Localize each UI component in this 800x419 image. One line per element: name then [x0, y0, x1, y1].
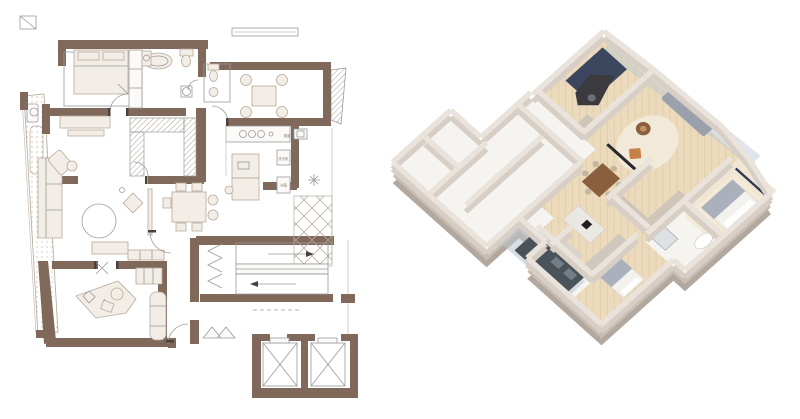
desk-chair-icon [111, 288, 123, 300]
floorplan-2d: 洗衣机 冰箱 烟道 [20, 16, 358, 398]
dining-table-icon [172, 192, 206, 222]
plant-icon [308, 174, 320, 186]
wardrobe-hatch [130, 118, 184, 132]
elevator-x-icon [311, 343, 345, 386]
ac-unit-top [20, 16, 36, 29]
wc-toilet-icon [210, 71, 218, 82]
fridge-label: 冰箱 [280, 183, 287, 188]
side-table-icon [67, 161, 77, 171]
floorplan-3d-isometric [393, 0, 791, 368]
apartment-floorplans-figure: 洗衣机 冰箱 烟道 [0, 0, 800, 419]
hall-closet-icon [136, 268, 162, 284]
shoe-bench-icon [203, 327, 235, 338]
dresser-icon [60, 116, 110, 128]
elevator-x-icon [263, 343, 297, 386]
tv-console-icon [92, 242, 128, 254]
walk-in-closet [130, 118, 196, 176]
balcony-strip-top [232, 28, 298, 36]
washer-label: 洗衣机 [278, 156, 289, 161]
balcony-diagonal-right [331, 68, 346, 124]
round-rug-icon [82, 204, 116, 238]
service-balcony [294, 174, 332, 264]
desk-icon [76, 281, 136, 318]
hall-bench-icon [150, 292, 166, 340]
tea-room [241, 75, 288, 118]
floorplans-canvas: 洗衣机 冰箱 烟道 [0, 0, 800, 419]
elevator-lobby [203, 327, 235, 338]
iso-orange-armchair [629, 148, 641, 159]
wc-basin-icon [209, 88, 218, 97]
kitchen-island-icon [232, 154, 259, 178]
tea-table-icon [252, 86, 276, 106]
tv-panel-icon [148, 189, 152, 235]
armchair-icon [123, 193, 143, 213]
flue-box [294, 129, 307, 139]
flue-label: 烟道 [284, 133, 291, 138]
master-bathroom [142, 49, 193, 97]
stair-chevrons [208, 244, 222, 288]
dining-room [163, 183, 218, 231]
